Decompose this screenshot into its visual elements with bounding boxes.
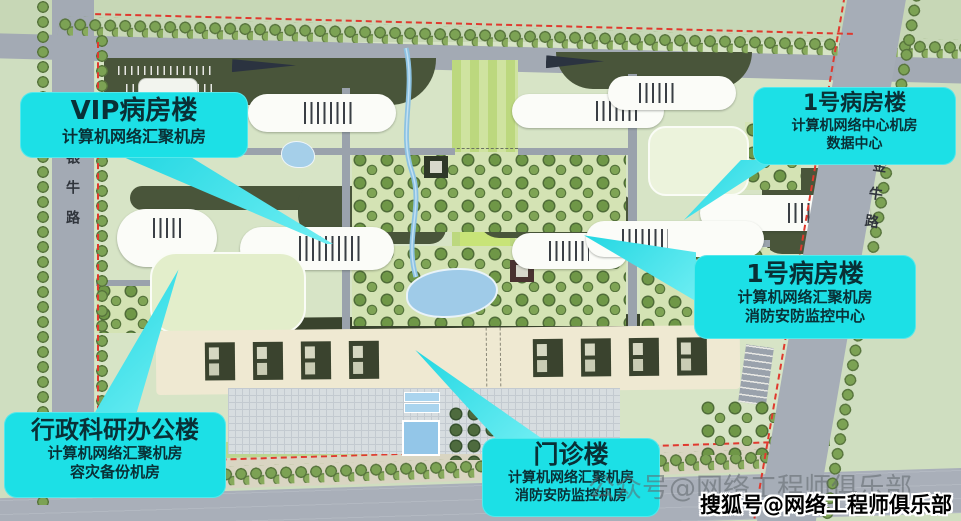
reflecting-pool xyxy=(402,420,440,456)
callout-title: VIP病房楼 xyxy=(20,96,248,126)
parking-stalls xyxy=(118,66,214,75)
callout-line: 计算机网络汇聚机房 xyxy=(4,444,226,463)
callout-line: 计算机网络中心机房 xyxy=(753,117,956,135)
callout-line: 消防安防监控中心 xyxy=(694,307,916,326)
internal-path xyxy=(518,148,630,155)
stream xyxy=(390,42,510,292)
admin-research-building xyxy=(150,252,306,334)
site-plan-image: 银牛路 金牛路 VIP病房楼 计算机网络汇聚机房 1号病房楼 计算机网络中心机房… xyxy=(0,0,961,521)
callout-title: 1号病房楼 xyxy=(753,91,956,117)
road-name-left: 银牛路 xyxy=(62,150,82,240)
callout-line: 容灾备份机房 xyxy=(4,463,226,482)
callout-ward1-datacenter: 1号病房楼 计算机网络中心机房 数据中心 xyxy=(753,87,956,165)
callout-title: 1号病房楼 xyxy=(694,259,916,288)
pond xyxy=(281,141,315,168)
callout-line: 计算机网络汇聚机房 xyxy=(694,288,916,307)
callout-admin-research: 行政科研办公楼 计算机网络汇聚机房 容灾备份机房 xyxy=(4,412,226,498)
ward-building xyxy=(248,94,396,132)
callout-line: 数据中心 xyxy=(753,135,956,153)
callout-vip-ward: VIP病房楼 计算机网络汇聚机房 xyxy=(20,92,248,158)
ward-building xyxy=(608,76,736,110)
water-feature xyxy=(404,392,440,402)
callout-title: 门诊楼 xyxy=(482,441,660,469)
water-feature xyxy=(404,403,440,413)
watermark-sohu: 搜狐号@网络工程师俱乐部 xyxy=(700,489,952,519)
callout-title: 行政科研办公楼 xyxy=(4,416,226,444)
callout-line: 计算机网络汇聚机房 xyxy=(20,126,248,148)
callout-ward1-security: 1号病房楼 计算机网络汇聚机房 消防安防监控中心 xyxy=(694,255,916,339)
